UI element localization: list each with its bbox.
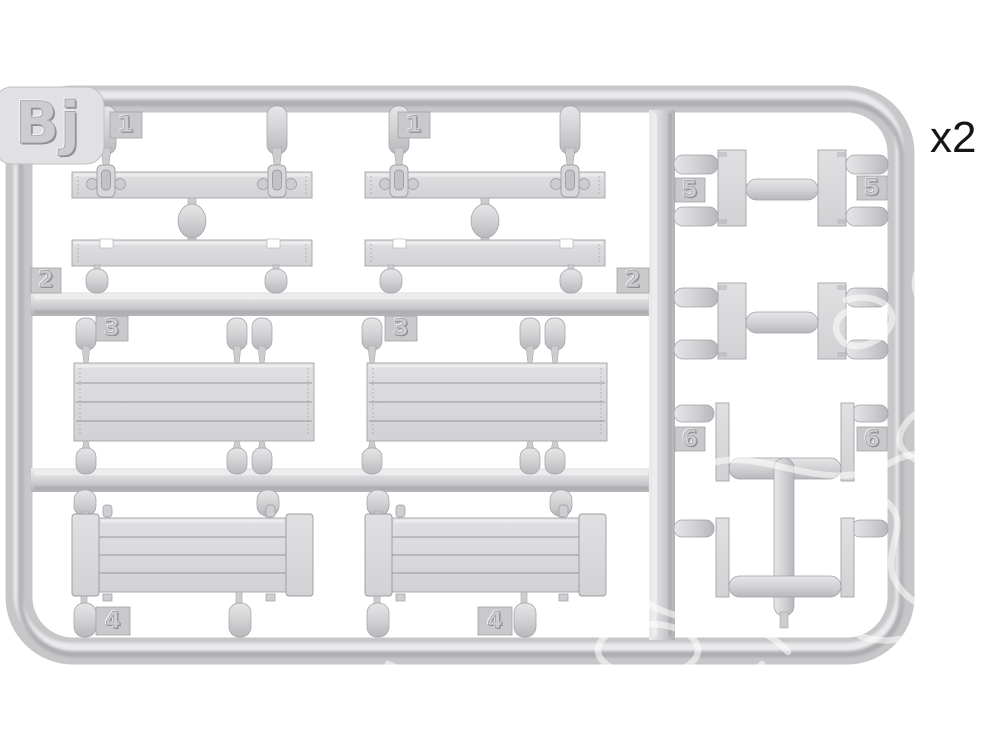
tag-text: 5 <box>682 178 697 203</box>
hinge-slot <box>102 170 111 190</box>
gate-knob <box>560 269 582 293</box>
highlight-line <box>76 365 312 368</box>
step-notch <box>837 285 846 290</box>
tag-text: 3 <box>393 316 408 341</box>
runner-vertical-divider <box>649 110 675 640</box>
shadow-line <box>34 310 648 314</box>
gate-knob <box>252 448 272 474</box>
gate-stem <box>780 612 788 628</box>
sprue-photo: 1 1 1 1 1 1 2 2 2 2 2 2 3 3 3 3 3 3 4 4 … <box>0 0 1000 750</box>
part-2a-gates <box>86 265 287 293</box>
gate-tip <box>551 346 559 364</box>
strip-body <box>716 518 729 597</box>
step-notch <box>718 352 727 357</box>
part-3b-panel <box>367 363 607 441</box>
highlight-line <box>394 520 577 523</box>
connector-pill <box>746 179 818 200</box>
gate-knob <box>514 603 536 637</box>
hinge-lug <box>115 179 126 190</box>
watermark-swirl <box>800 531 836 562</box>
step-notch <box>837 219 846 224</box>
gate-knob <box>178 204 206 238</box>
gate-tip <box>526 346 534 364</box>
part-number-tag-6a: 6 6 6 <box>675 426 705 453</box>
tag-text: 1 <box>406 113 421 138</box>
gate-knob <box>560 106 580 154</box>
gate-knob <box>846 155 888 174</box>
tag-text: 6 <box>864 427 879 452</box>
connector-pill <box>746 312 818 333</box>
gate-knob <box>674 155 718 174</box>
tag-text: 1 <box>118 113 133 138</box>
gate-knob <box>267 106 287 154</box>
hinge-lug <box>87 179 98 190</box>
gate-stem <box>236 592 242 604</box>
gate-knob <box>545 448 565 474</box>
part-4a-panel <box>72 505 313 601</box>
highlight-line <box>652 113 657 637</box>
sprue-code-text: Bj <box>15 89 81 157</box>
tag-text: 4 <box>487 609 502 634</box>
gate-knob <box>674 288 718 307</box>
foot-pin <box>103 594 112 601</box>
tag-text: 6 <box>682 427 697 452</box>
runner-middle-upper <box>31 292 651 316</box>
gate-tip <box>368 346 376 364</box>
notch <box>267 239 280 248</box>
hinge-pin <box>396 505 405 517</box>
gate-knob <box>229 603 251 637</box>
gate-knob <box>227 448 247 474</box>
part-1a-center-knob <box>178 198 206 242</box>
part-number-tag-4a: 4 4 4 <box>96 607 130 635</box>
hinge-lug <box>408 179 419 190</box>
strip-body <box>716 403 729 481</box>
gate-knob <box>265 269 287 293</box>
end-rail <box>72 514 99 596</box>
gate-tip <box>233 346 241 364</box>
sprue-code-tab: Bj Bj Bj <box>0 87 104 164</box>
gate-knob <box>545 318 565 350</box>
notch <box>560 239 573 248</box>
hinge-slot <box>395 170 404 190</box>
gate-tip <box>258 346 266 364</box>
gate-knob <box>367 603 389 637</box>
tag-text: 2 <box>625 268 640 293</box>
part-number-tag-2a: 2 2 2 <box>31 267 61 294</box>
gate-knob <box>520 318 540 350</box>
highlight-line <box>369 365 605 368</box>
part-number-tag-4b: 4 4 4 <box>478 607 512 635</box>
part-number-tag-5b: 5 5 5 <box>857 175 887 202</box>
hinge-slot <box>273 170 282 190</box>
strip-body <box>841 518 854 597</box>
part-2b-gates <box>380 265 582 293</box>
gate-knob <box>471 204 499 238</box>
hinge-lug <box>380 179 391 190</box>
end-rail <box>579 514 606 596</box>
gate-knob <box>674 207 718 226</box>
part-1b-center-knob <box>471 198 499 242</box>
hinge-pin <box>103 505 112 517</box>
gate-knob <box>852 405 888 422</box>
connector-pill <box>729 576 841 597</box>
part-1b-slat <box>365 165 605 198</box>
bracket-body <box>818 283 846 359</box>
step-notch <box>837 352 846 357</box>
step-notch <box>718 152 727 157</box>
tag-text: 4 <box>105 609 120 634</box>
quantity-label: x2 <box>930 113 976 162</box>
part-number-tag-5a: 5 5 5 <box>675 177 705 204</box>
gate-knob <box>674 520 714 537</box>
notch <box>100 239 113 248</box>
gate-knob <box>86 269 108 293</box>
hinge-pin <box>266 505 275 517</box>
part-number-tag-1b: 1 1 1 <box>398 112 430 139</box>
end-rail <box>286 514 313 596</box>
hinge-lug <box>258 179 269 190</box>
hinge-pin <box>559 505 568 517</box>
gate-knob <box>76 448 96 474</box>
part-3a-panel <box>74 363 314 441</box>
part-number-tag-3b: 3 3 3 <box>385 315 417 342</box>
foot-pin <box>266 594 275 601</box>
gate-knob <box>362 318 382 350</box>
part-2b-slat <box>365 239 605 266</box>
gate-knob <box>852 520 888 537</box>
part-2a-slat <box>72 239 312 266</box>
tag-text: 3 <box>104 316 119 341</box>
gate-tip <box>82 346 90 364</box>
bracket-body <box>818 150 846 226</box>
gate-knob <box>520 448 540 474</box>
gate-knob <box>252 318 272 350</box>
gate-knob <box>362 448 382 474</box>
tag-text: 2 <box>38 268 53 293</box>
part-number-tag-3a: 3 3 3 <box>96 315 128 342</box>
hinge-lug <box>286 179 297 190</box>
gate-knob <box>846 207 888 226</box>
gate-knob <box>380 269 402 293</box>
hinge-lug <box>579 179 590 190</box>
gate-stem <box>521 592 527 604</box>
hinge-slot <box>566 170 575 190</box>
foot-pin <box>559 594 568 601</box>
gate-knob <box>674 340 718 359</box>
shadow-line <box>668 113 672 637</box>
highlight-line <box>101 520 284 523</box>
tag-text: 5 <box>864 176 879 201</box>
part-6-assembly <box>674 403 888 628</box>
gate-knob <box>76 318 96 350</box>
bracket-body <box>718 283 746 359</box>
end-rail <box>365 514 392 596</box>
foot-pin <box>396 594 405 601</box>
part-1a-slat <box>72 165 312 198</box>
shadow-line <box>34 486 648 490</box>
part-4b-panel <box>365 505 606 601</box>
gate-knob <box>74 603 96 637</box>
bracket-body <box>718 150 746 226</box>
step-notch <box>718 285 727 290</box>
part-number-tag-2b: 2 2 2 <box>617 267 649 294</box>
part-5-assembly-1 <box>674 150 888 226</box>
gate-knob <box>227 318 247 350</box>
part-number-tag-1a: 1 1 1 <box>110 112 142 139</box>
step-notch <box>837 152 846 157</box>
strip-body <box>841 403 854 481</box>
photo-canvas: 1 1 1 1 1 1 2 2 2 2 2 2 3 3 3 3 3 3 4 4 … <box>0 0 1000 750</box>
notch <box>393 239 406 248</box>
hinge-lug <box>551 179 562 190</box>
watermark-swirl <box>388 664 762 702</box>
part-number-tag-6b: 6 6 6 <box>857 426 887 453</box>
step-notch <box>718 219 727 224</box>
gate-knob <box>674 405 714 422</box>
highlight-line <box>34 295 648 300</box>
